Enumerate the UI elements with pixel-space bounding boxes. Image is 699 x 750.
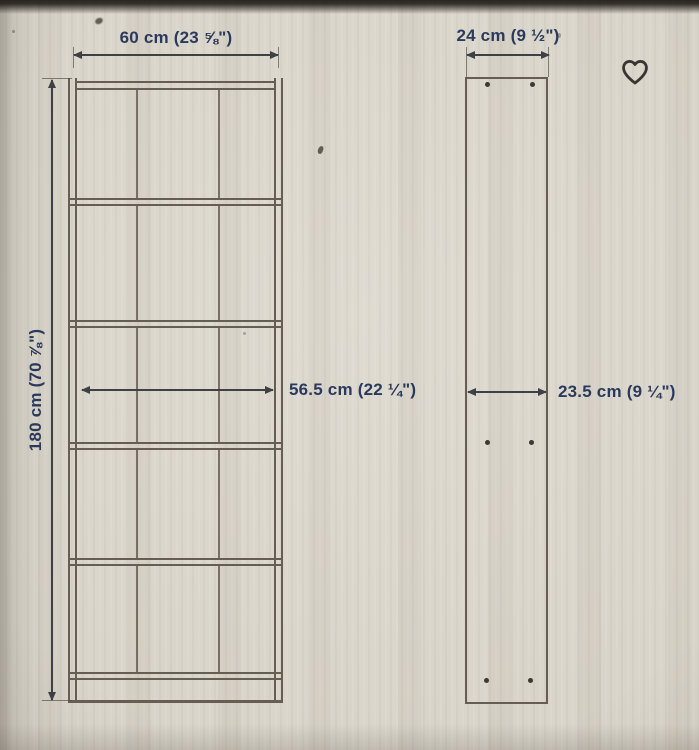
- extension-line: [466, 47, 467, 77]
- back-panel-seam: [218, 566, 220, 672]
- dimension-arrow-width: [74, 54, 278, 56]
- photo-speck: [317, 145, 324, 154]
- photo-speck: [12, 30, 15, 33]
- dimension-arrow-height: [51, 80, 53, 700]
- dimension-label-interior-depth: 23.5 cm (9 ¼"): [558, 382, 676, 402]
- front-left-side-panel: [68, 78, 77, 703]
- back-panel-seam: [218, 90, 220, 198]
- dimension-arrow-interior-width: [82, 389, 273, 391]
- back-panel-seam: [136, 206, 138, 320]
- back-panel-seam: [136, 90, 138, 198]
- extension-line: [73, 47, 74, 68]
- dimension-arrow-interior-depth: [468, 391, 546, 393]
- back-panel-seam: [136, 566, 138, 672]
- dimension-label-interior-width: 56.5 cm (22 ¼"): [289, 380, 416, 400]
- drill-hole: [530, 82, 535, 87]
- heart-outline-icon: [618, 76, 652, 91]
- dimension-label-depth: 24 cm (9 ½"): [408, 26, 608, 46]
- extension-line: [42, 700, 72, 701]
- photo-speck: [243, 332, 246, 335]
- bookcase-front-view: [68, 78, 283, 703]
- drill-hole: [528, 678, 533, 683]
- shelf-line: [68, 672, 283, 680]
- drill-hole: [485, 82, 490, 87]
- drill-hole: [529, 440, 534, 445]
- favorite-button[interactable]: [617, 56, 653, 90]
- photo-speck: [94, 17, 104, 26]
- shelf-line: [68, 442, 283, 450]
- drill-hole: [484, 678, 489, 683]
- shelf-line: [68, 320, 283, 328]
- front-top-rail: [77, 81, 274, 90]
- back-panel-seam: [136, 328, 138, 442]
- extension-line: [278, 47, 279, 68]
- photo-speck: [558, 33, 561, 38]
- front-right-side-panel: [274, 78, 283, 703]
- back-panel-seam: [136, 450, 138, 558]
- shelf-line: [68, 558, 283, 566]
- shelf-line: [68, 198, 283, 206]
- back-panel-seam: [218, 206, 220, 320]
- extension-line: [548, 47, 549, 77]
- drill-hole: [485, 440, 490, 445]
- dimension-arrow-depth: [467, 54, 549, 56]
- dimension-label-width: 60 cm (23 ⅝"): [76, 28, 276, 48]
- dimension-diagram-photo: 60 cm (23 ⅝") 24 cm (9 ½") 180 cm (70 ⅞"…: [0, 0, 699, 750]
- extension-line: [42, 78, 72, 79]
- back-panel-seam: [218, 328, 220, 442]
- front-bottom-edge: [68, 700, 283, 703]
- dimension-label-height: 180 cm (70 ⅞"): [26, 329, 46, 451]
- back-panel-seam: [218, 450, 220, 558]
